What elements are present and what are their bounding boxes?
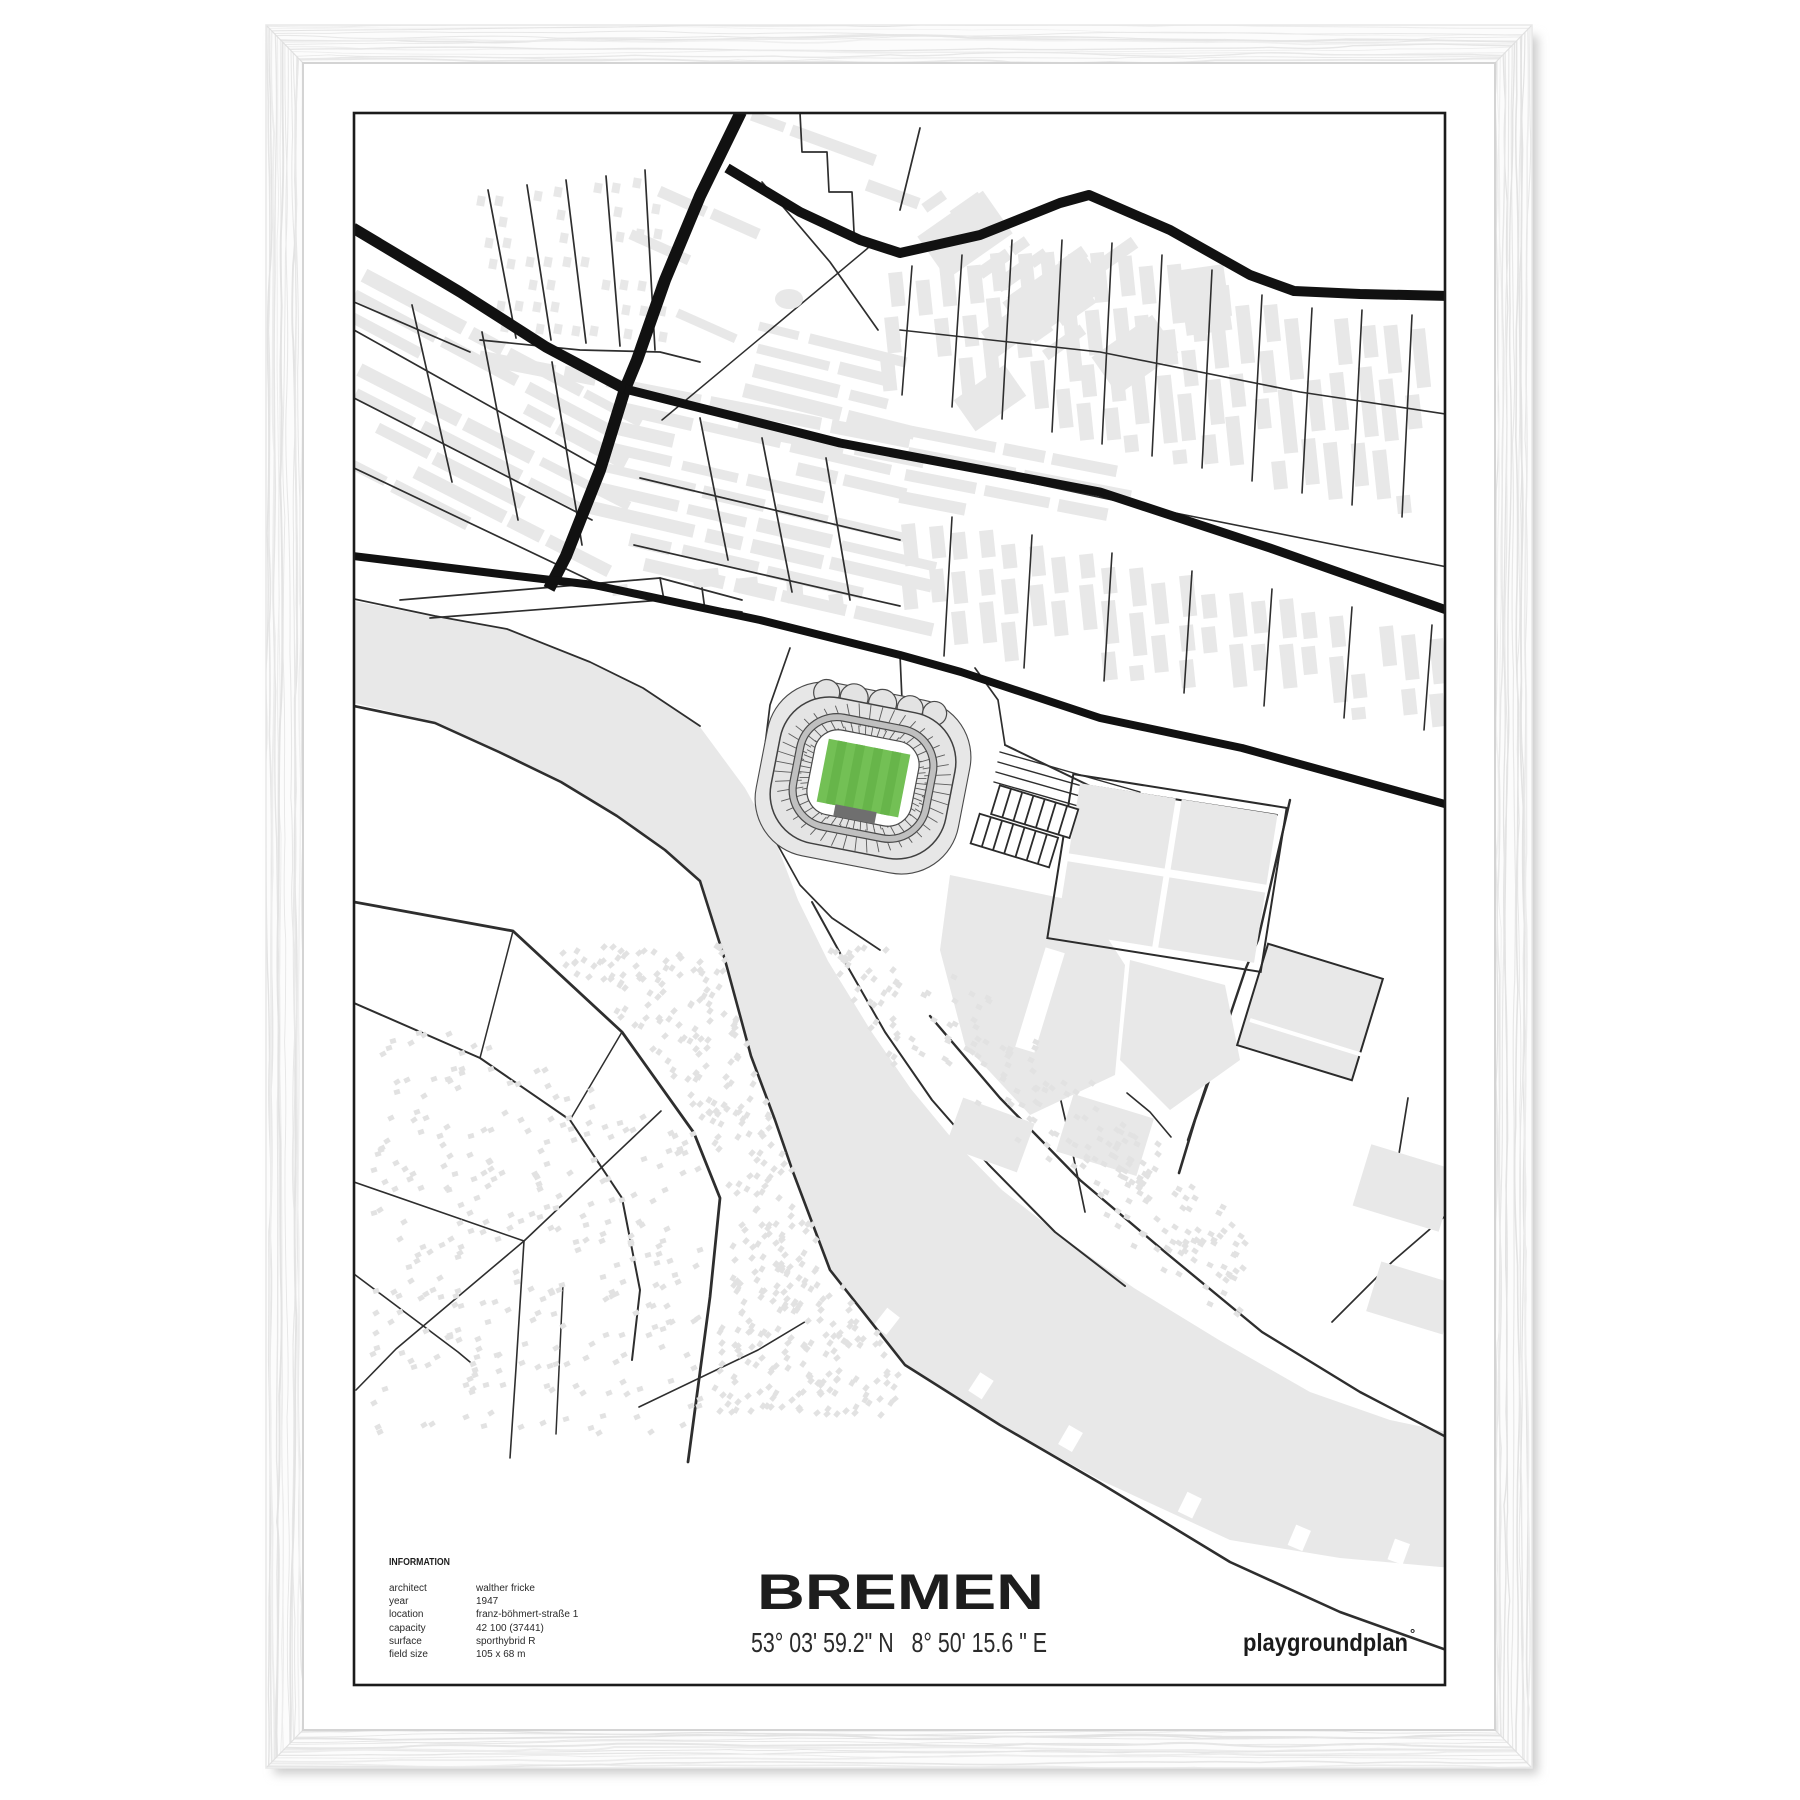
svg-text:capacity: capacity	[389, 1623, 426, 1634]
svg-text:playgroundplan: playgroundplan	[1243, 1629, 1408, 1657]
svg-text:architect: architect	[389, 1583, 427, 1594]
svg-text:INFORMATION: INFORMATION	[389, 1557, 450, 1568]
svg-text:field size: field size	[389, 1649, 428, 1660]
svg-text:location: location	[389, 1609, 423, 1620]
svg-text:°: °	[1410, 1626, 1415, 1641]
svg-text:franz-böhmert-straße 1: franz-böhmert-straße 1	[476, 1609, 579, 1620]
svg-text:walther fricke: walther fricke	[475, 1583, 535, 1594]
svg-text:sporthybrid R: sporthybrid R	[476, 1636, 535, 1647]
svg-text:BREMEN: BREMEN	[757, 1564, 1044, 1620]
svg-text:42 100 (37441): 42 100 (37441)	[476, 1623, 544, 1634]
svg-text:53° 03' 59.2" N 8° 50' 15.6: 53° 03' 59.2" N 8° 50' 15.6 " E	[751, 1627, 1047, 1658]
svg-text:surface: surface	[389, 1636, 422, 1647]
svg-text:1947: 1947	[476, 1596, 499, 1607]
svg-text:105 x 68 m: 105 x 68 m	[476, 1649, 525, 1660]
svg-text:year: year	[389, 1596, 409, 1607]
